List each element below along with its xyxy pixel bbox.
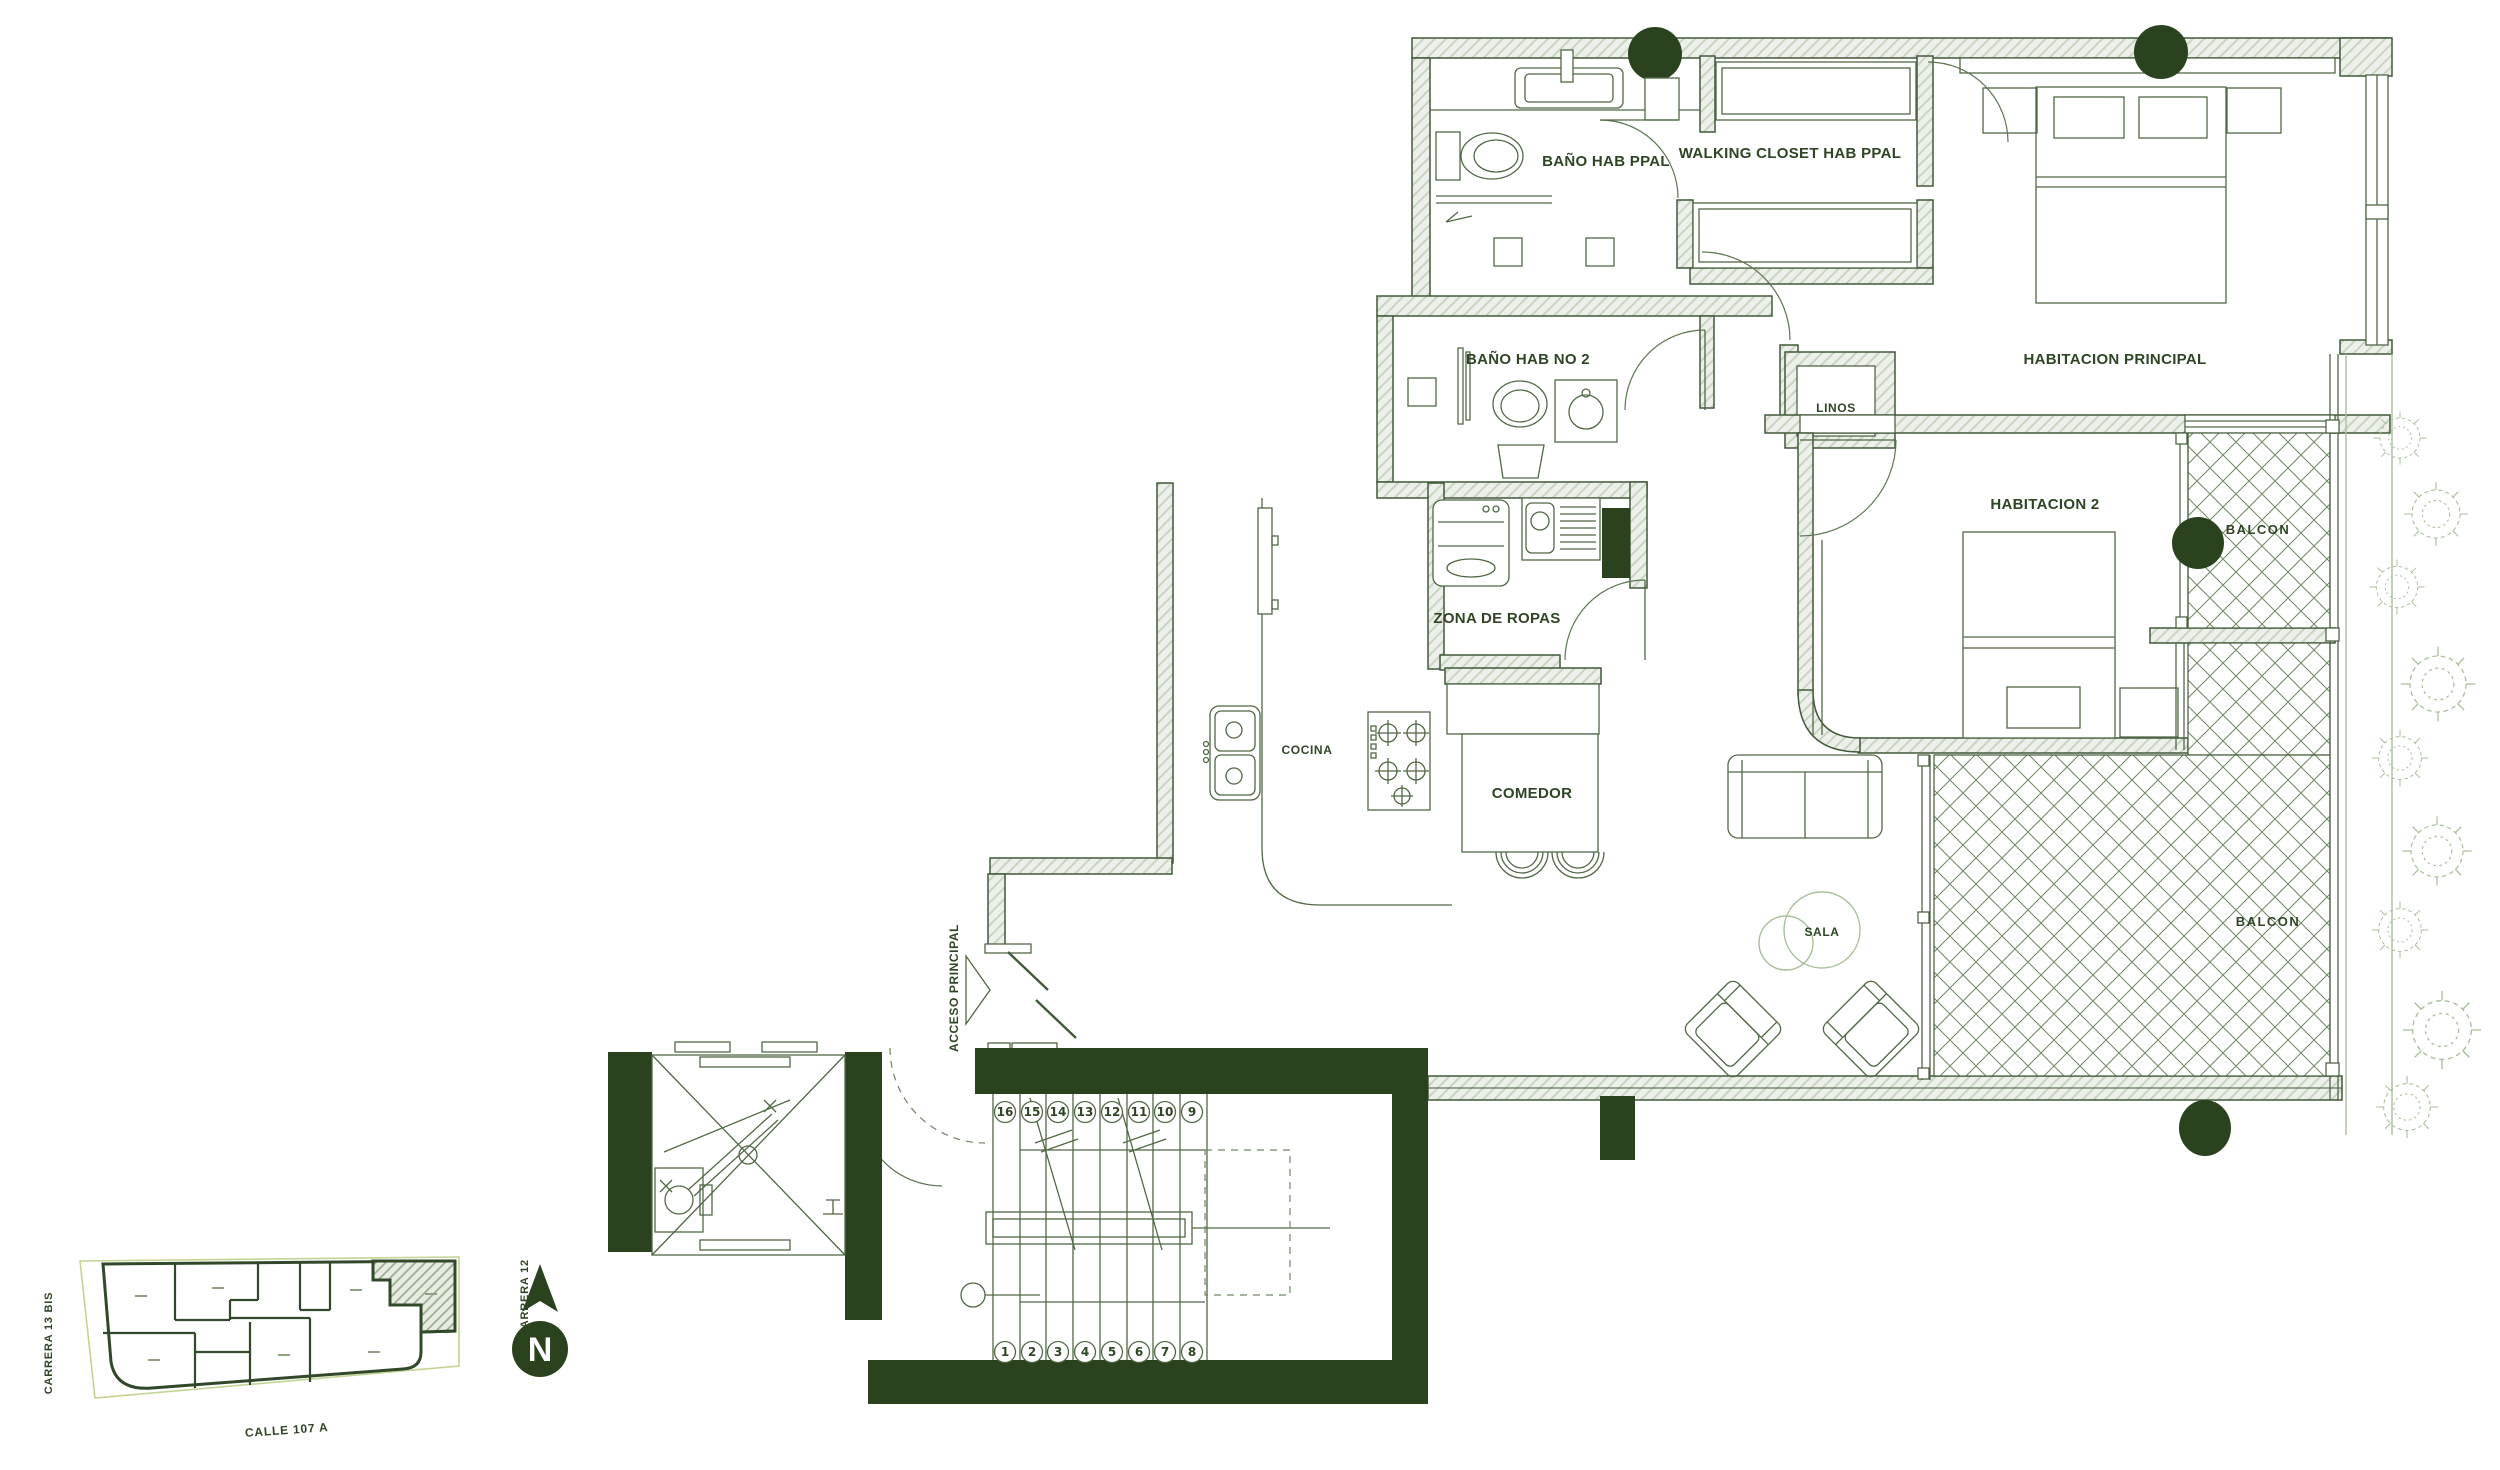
floor-plan-drawing: 16 15 14 13 12 11 10 9 1 2 3 4 5 6 7 8 (0, 0, 2500, 1470)
hab-ppal-furniture (1983, 75, 2388, 345)
label-calle107a: CALLE 107 A (244, 1420, 328, 1440)
stair-number: 1 (1001, 1345, 1009, 1359)
handrail (986, 1212, 1192, 1244)
column-circle (2134, 25, 2188, 79)
stools (1496, 852, 1604, 878)
label-carrera13: CARRERA 13 BIS (43, 1292, 55, 1394)
washing-machine (1433, 500, 1509, 586)
label-bano2: BAÑO HAB NO 2 (1466, 350, 1590, 368)
sink-basin (1569, 395, 1603, 429)
label-linos: LINOS (1816, 401, 1856, 415)
armchair (1820, 978, 1922, 1080)
toilet-tank (1436, 132, 1460, 180)
column-rect (1600, 1096, 1635, 1160)
stair-number: 7 (1161, 1345, 1169, 1359)
nightstand (2227, 88, 2281, 133)
stair-number: 5 (1108, 1345, 1116, 1359)
stair-numbers-top: 16 15 14 13 12 11 10 9 (995, 1102, 1203, 1123)
tall-cabinet (1258, 508, 1272, 614)
label-bano-ppal: BAÑO HAB PPAL (1542, 152, 1670, 170)
bed-2 (1963, 532, 2115, 738)
column-ellipse (2179, 1100, 2231, 1156)
stair-number: 6 (1135, 1345, 1143, 1359)
stair-number: 8 (1188, 1345, 1196, 1359)
nightstand (2120, 688, 2178, 737)
north-label: N (528, 1331, 553, 1369)
bed-principal (2036, 87, 2226, 303)
comedor-furniture (1447, 684, 1604, 878)
label-hab2: HABITACION 2 (1990, 496, 2099, 513)
stair-number: 15 (1024, 1105, 1041, 1119)
label-cocina: COCINA (1282, 743, 1333, 757)
stair-numbers-bottom: 1 2 3 4 5 6 7 8 (995, 1342, 1203, 1363)
label-sala: SALA (1804, 925, 1839, 939)
sala-furniture (1682, 755, 1922, 1080)
stair-number: 10 (1157, 1105, 1174, 1119)
closet-shelf (1716, 62, 1916, 120)
floor-plan-page: 16 15 14 13 12 11 10 9 1 2 3 4 5 6 7 8 (0, 0, 2500, 1470)
label-carrera12: CARRERA 12 (519, 1259, 531, 1337)
nightstand (1983, 88, 2037, 133)
stair-number: 4 (1081, 1345, 1089, 1359)
stove (1368, 712, 1430, 810)
shower-drain (1494, 238, 1522, 266)
elevator-pier (845, 1052, 882, 1320)
hab2-furniture (1813, 532, 2178, 738)
stair-core (608, 1048, 1428, 1404)
stair-number: 3 (1054, 1345, 1062, 1359)
kitchen-sink (1210, 706, 1260, 800)
island-counter (1447, 684, 1599, 734)
tree-row (2346, 354, 2481, 1138)
stair-number: 14 (1050, 1105, 1067, 1119)
zona-ropas-fixtures (1433, 498, 1600, 586)
elevator (652, 1042, 845, 1255)
column-circle (2172, 517, 2224, 569)
label-comedor: COMEDOR (1492, 785, 1572, 802)
stairs: 16 15 14 13 12 11 10 9 1 2 3 4 5 6 7 8 (961, 1094, 1330, 1363)
faucet (1561, 50, 1573, 82)
stair-number: 2 (1028, 1345, 1036, 1359)
label-hab-ppal: HABITACION PRINCIPAL (2024, 351, 2207, 368)
stair-number: 13 (1077, 1105, 1094, 1119)
stair-number: 9 (1188, 1105, 1196, 1119)
stair-number: 11 (1131, 1105, 1148, 1119)
shower-drain (1586, 238, 1614, 266)
armchair (1682, 978, 1784, 1080)
toilet-tank (1498, 445, 1544, 478)
shower-drain (1408, 378, 1436, 406)
label-balcon-lower: BALCON (2236, 914, 2301, 929)
column-rect (1602, 508, 1630, 578)
label-balcon-upper: BALCON (2226, 522, 2291, 537)
closet-island (1693, 203, 1917, 268)
label-walking-closet: WALKING CLOSET HAB PPAL (1679, 145, 1901, 162)
column-circle (1628, 27, 1682, 81)
site-plan (80, 1257, 459, 1398)
cocina-fixtures (1204, 498, 1453, 905)
stair-number: 12 (1104, 1105, 1121, 1119)
label-acceso: ACCESO PRINCIPAL (947, 924, 961, 1052)
stair-number: 16 (997, 1105, 1014, 1119)
elevator-pier (608, 1052, 652, 1252)
label-zona-ropas: ZONA DE ROPAS (1433, 610, 1560, 627)
walking-closet-fixtures (1693, 62, 1917, 268)
entry-arrow (966, 956, 990, 1024)
